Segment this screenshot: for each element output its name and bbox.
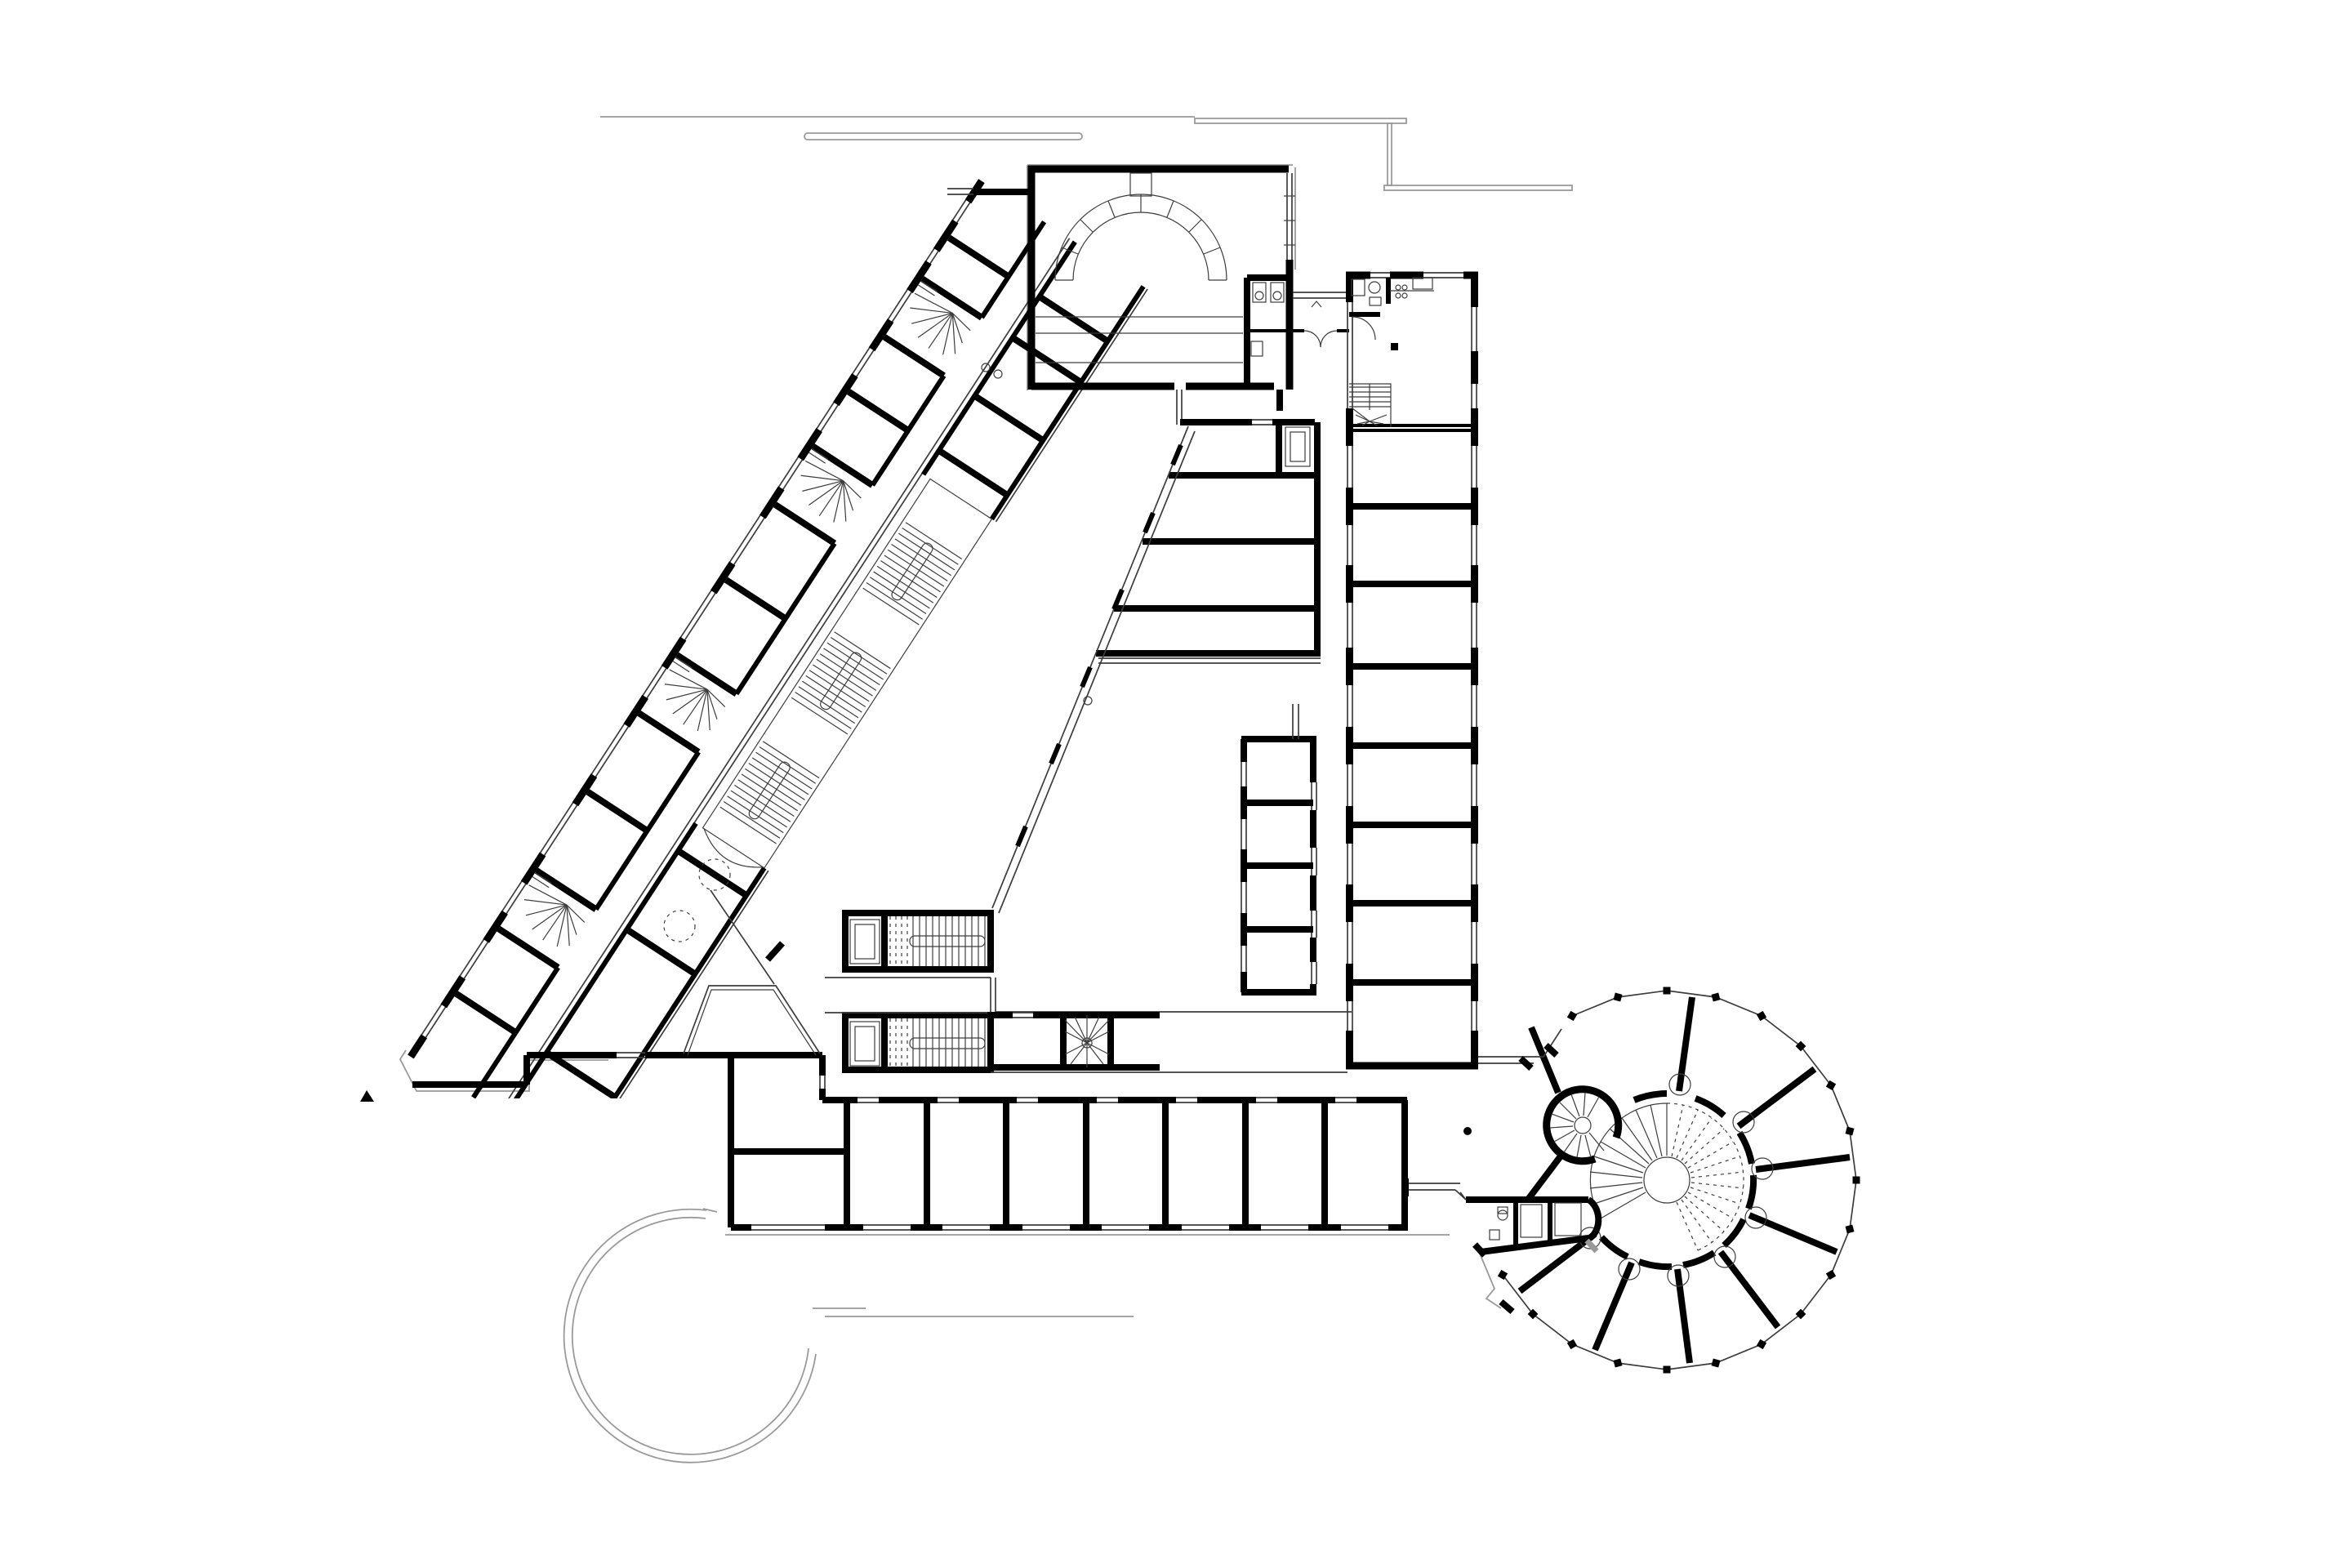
- column-dot: [1463, 1127, 1472, 1135]
- column: [1391, 343, 1398, 350]
- floor-plan-drawing: [0, 0, 2352, 1568]
- floor-plan-page: [0, 0, 2352, 1568]
- paper-background: [0, 0, 2352, 1568]
